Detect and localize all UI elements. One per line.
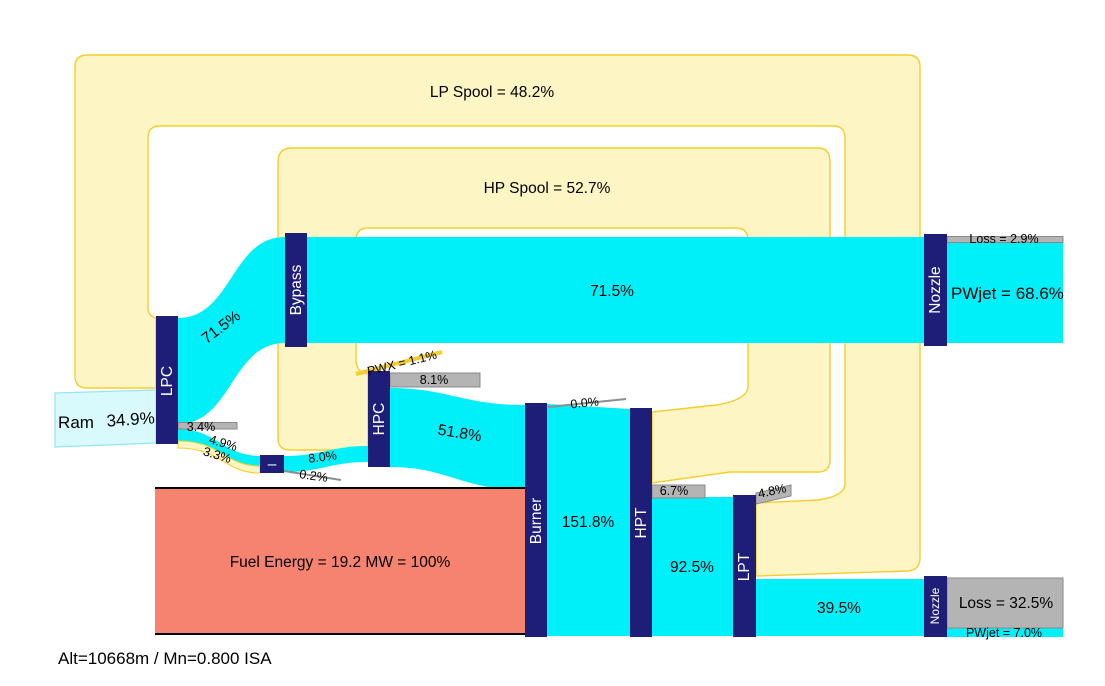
node-nozzle-bottom-label: Nozzle	[928, 587, 942, 624]
fuel-label: Fuel Energy = 19.2 MW = 100%	[230, 554, 451, 571]
flow-bypass-nozzle-label: 71.5%	[590, 283, 634, 300]
pwjet-top-label: PWjet = 68.6%	[951, 284, 1064, 303]
flow-burner-hpt-label: 151.8%	[562, 514, 615, 531]
ram-label: Ram	[58, 413, 94, 432]
caption-label: Alt=10668m / Mn=0.800 ISA	[58, 649, 272, 668]
lp-spool-label: LP Spool = 48.2%	[430, 84, 554, 101]
loss-junction-label: 0.2%	[298, 467, 328, 485]
loss-nozzle-top-label: Loss = 2.9%	[969, 232, 1038, 246]
loss-hpt-label: 6.7%	[660, 484, 689, 498]
flow-lpt-nozzle-label: 39.5%	[817, 600, 861, 617]
node-lpc-label: LPC	[159, 366, 176, 396]
hp-spool-label: HP Spool = 52.7%	[484, 180, 611, 197]
loss-hpc-label: 8.1%	[420, 373, 449, 387]
node-junction-label: –	[268, 456, 277, 473]
node-bypass-label: Bypass	[288, 264, 305, 315]
sankey-diagram: LP Spool = 48.2% HP Spool = 52.7% Ram 34…	[0, 0, 1105, 686]
node-burner-label: Burner	[528, 498, 545, 545]
node-nozzle-top-label: Nozzle	[927, 266, 944, 313]
loss-burner-label: 0.0%	[570, 395, 600, 412]
node-lpt-label: LPT	[736, 552, 753, 581]
ram-value-label: 34.9%	[106, 408, 155, 430]
loss-nozzle-bottom-label: Loss = 32.5%	[959, 595, 1054, 612]
node-hpt-label: HPT	[633, 507, 650, 539]
flow-hpt-lpt-label: 92.5%	[670, 559, 714, 576]
pwjet-bottom-label: PWjet = 7.0%	[966, 626, 1042, 640]
flow-lpc-bypass	[178, 237, 285, 424]
node-hpc-label: HPC	[371, 403, 388, 436]
